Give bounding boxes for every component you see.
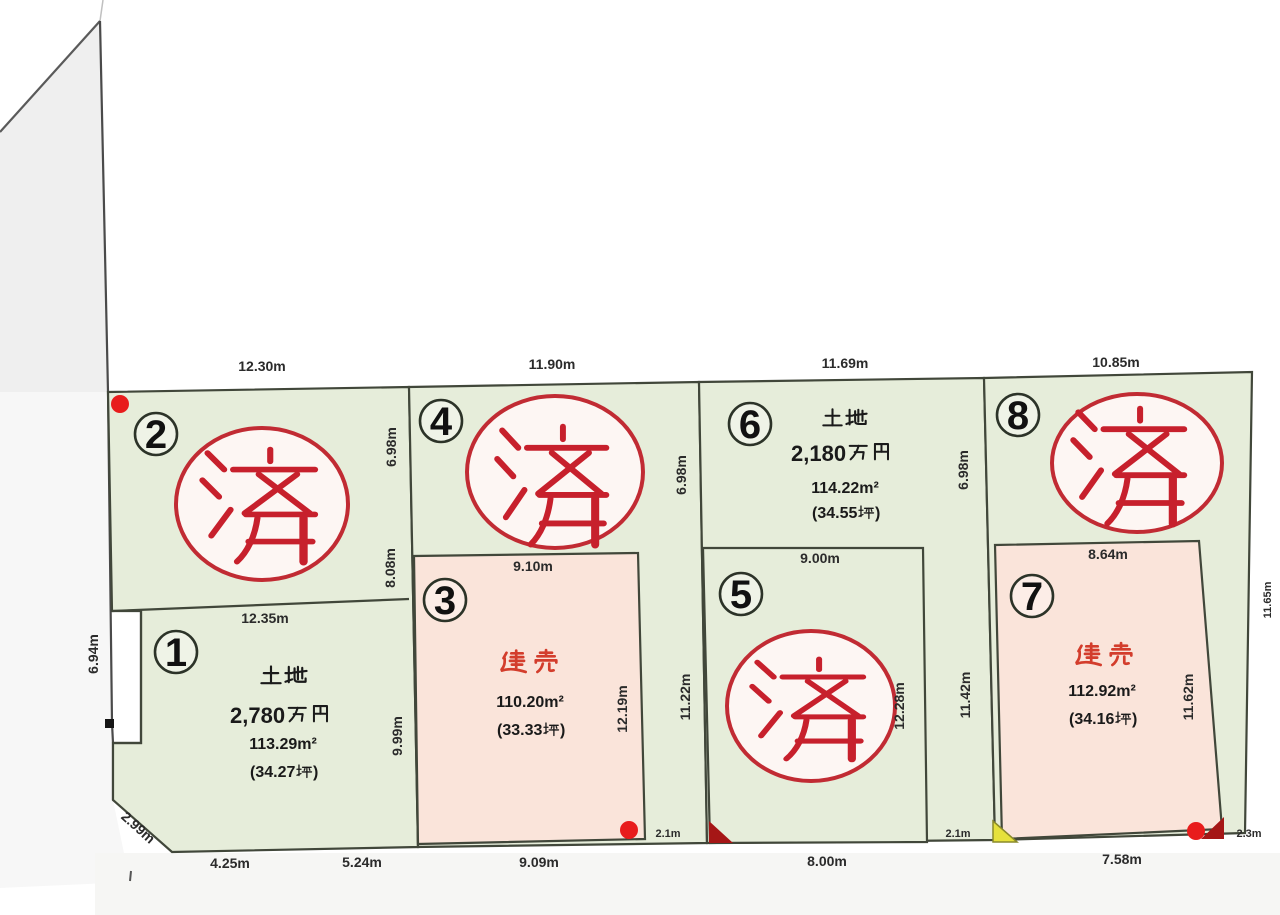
svg-text:9.10m: 9.10m: [513, 558, 553, 574]
svg-text:6.98m: 6.98m: [383, 427, 399, 467]
svg-text:11.62m: 11.62m: [1180, 674, 1196, 721]
svg-text:): ): [560, 722, 565, 739]
svg-text:6.98m: 6.98m: [673, 455, 689, 495]
svg-text:11.69m: 11.69m: [822, 355, 869, 371]
svg-text:113.29m²: 113.29m²: [249, 736, 317, 753]
svg-text:2: 2: [145, 413, 167, 457]
svg-text:12.35m: 12.35m: [241, 610, 288, 626]
svg-text:11.65m: 11.65m: [1262, 581, 1274, 618]
svg-text:(34.16: (34.16: [1069, 711, 1114, 728]
svg-text:6.98m: 6.98m: [955, 450, 971, 490]
svg-text:2.1m: 2.1m: [655, 828, 680, 840]
svg-text:7.58m: 7.58m: [1102, 851, 1142, 867]
svg-text:(34.55: (34.55: [812, 505, 857, 522]
svg-text:1: 1: [165, 631, 187, 675]
svg-text:110.20m²: 110.20m²: [496, 694, 564, 711]
svg-text:): ): [313, 764, 318, 781]
svg-text:): ): [1132, 711, 1137, 728]
svg-text:8: 8: [1007, 394, 1029, 438]
svg-text:6.94m: 6.94m: [85, 634, 101, 674]
svg-text:4.25m: 4.25m: [210, 855, 250, 871]
svg-text:12.28m: 12.28m: [891, 682, 907, 729]
svg-text:3: 3: [434, 579, 456, 623]
svg-text:114.22m²: 114.22m²: [811, 480, 879, 497]
svg-text:8.00m: 8.00m: [807, 853, 847, 869]
svg-text:4: 4: [430, 400, 453, 444]
svg-text:8.64m: 8.64m: [1088, 546, 1128, 562]
svg-text:2,180: 2,180: [791, 441, 846, 466]
svg-text:11.42m: 11.42m: [957, 672, 973, 719]
svg-text:5.24m: 5.24m: [342, 854, 382, 870]
svg-text:2,780: 2,780: [230, 703, 285, 728]
svg-text:(33.33: (33.33: [497, 722, 542, 739]
svg-text:): ): [875, 505, 880, 522]
svg-text:11.22m: 11.22m: [677, 674, 693, 721]
svg-text:10.85m: 10.85m: [1092, 354, 1139, 370]
svg-text:9.00m: 9.00m: [800, 550, 840, 566]
svg-text:6: 6: [739, 403, 761, 447]
svg-text:8.08m: 8.08m: [382, 548, 398, 588]
svg-text:(34.27: (34.27: [250, 764, 295, 781]
svg-text:2.3m: 2.3m: [1236, 828, 1261, 840]
svg-text:12.19m: 12.19m: [614, 685, 630, 732]
svg-text:112.92m²: 112.92m²: [1068, 683, 1136, 700]
svg-text:2.1m: 2.1m: [945, 828, 970, 840]
svg-text:11.90m: 11.90m: [529, 356, 576, 372]
svg-text:9.09m: 9.09m: [519, 854, 559, 870]
svg-text:9.99m: 9.99m: [389, 716, 405, 756]
svg-text:12.30m: 12.30m: [238, 358, 285, 374]
svg-text:5: 5: [730, 573, 752, 617]
svg-text:7: 7: [1021, 575, 1043, 619]
